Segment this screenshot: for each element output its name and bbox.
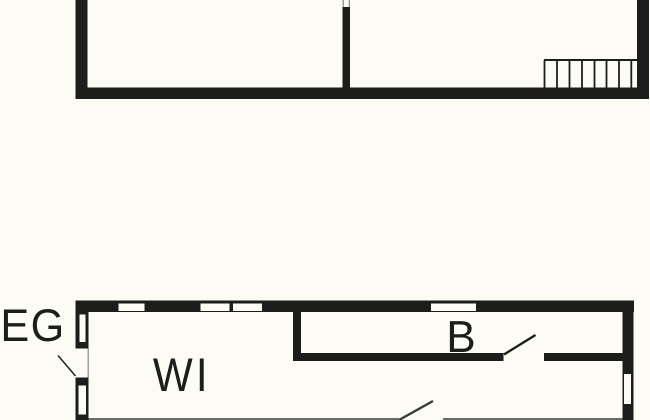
svg-text:EG: EG [0, 301, 65, 351]
svg-text:WI: WI [153, 350, 211, 402]
svg-text:B: B [446, 313, 475, 362]
